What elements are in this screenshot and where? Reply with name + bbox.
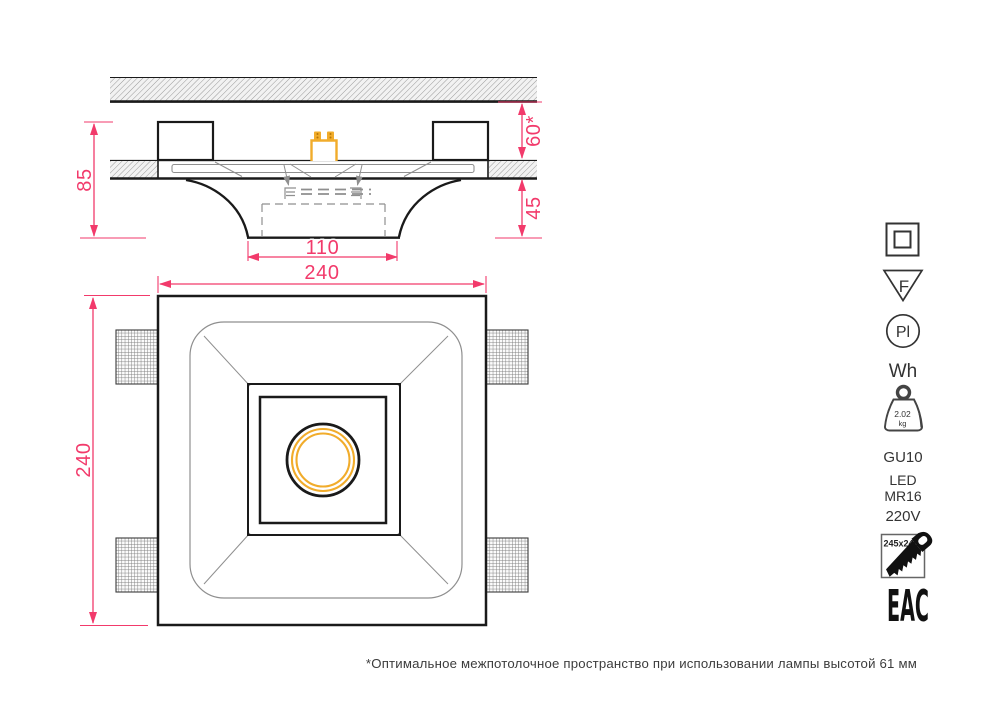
dimension-total-height: 85 [74, 122, 146, 238]
plasterboard-right-hatch [489, 161, 537, 178]
plan-view: 240 240 [73, 262, 528, 626]
section-view: 85 60* 45 110 [74, 77, 545, 261]
cone-corner-edges [204, 336, 448, 584]
technical-drawing-page: 85 60* 45 110 [0, 0, 1000, 706]
dimension-opening-width: 110 [248, 237, 397, 261]
weight-value-label: 2.02 [894, 409, 911, 419]
dim-plenum-label: 60* [523, 115, 545, 147]
mesh-pad-bottom-left [116, 538, 158, 592]
dim-opening-width-label: 110 [306, 237, 340, 259]
dimension-plenum: 60* [498, 102, 545, 158]
f-mark-icon: F [884, 271, 922, 301]
socket-pin-right [327, 132, 334, 141]
lamp-type-line2: MR16 [884, 488, 922, 504]
pl-mark-icon: Pl [887, 315, 919, 347]
cone-bottom-square [248, 384, 400, 535]
lamp-frame-square [260, 397, 386, 523]
socket-label: GU10 [883, 449, 922, 466]
socket-body [312, 141, 337, 162]
mesh-pad-bottom-right [486, 538, 528, 592]
fixture-flange [172, 165, 474, 173]
voltage-label: 220V [885, 508, 920, 525]
lamp-clip-left [285, 188, 296, 199]
plasterboard-left-hatch [110, 161, 158, 178]
weight-unit-label: kg [899, 419, 907, 428]
mounting-box-right [433, 122, 488, 160]
socket-pin-left [314, 132, 321, 141]
mesh-pad-top-left [116, 330, 158, 384]
section-hidden-lines [215, 162, 431, 236]
finish-color-label: Wh [889, 361, 918, 382]
dim-plan-height-label: 240 [73, 442, 95, 477]
dimension-recess-depth: 45 [495, 180, 545, 238]
footnote-text: *Оптимальное межпотолочное пространство … [366, 656, 917, 671]
lamp-socket-icon [312, 132, 337, 162]
drawing-canvas: 85 60* 45 110 [0, 0, 1000, 706]
dim-plan-width-label: 240 [304, 262, 339, 284]
lamp-type-line1: LED [889, 472, 916, 488]
dim-total-height-label: 85 [74, 168, 96, 191]
mounting-box-left [158, 122, 213, 160]
lamp-rings [287, 424, 359, 496]
pl-mark-label: Pl [896, 324, 910, 341]
dimension-plan-width: 240 [158, 262, 486, 293]
f-mark-label: F [899, 277, 909, 296]
cutout-saw-icon: 245x245 [880, 528, 936, 580]
eac-certification-mark: EAC [887, 581, 929, 632]
dim-recess-depth-label: 45 [523, 196, 545, 219]
spec-icon-column: F Pl Wh 2.02 kg GU10 LED MR16 220V 245x2… [880, 224, 936, 633]
lamp-outline-dashed [262, 204, 385, 236]
weight-icon: 2.02 kg [885, 387, 922, 431]
mesh-pad-top-right [486, 330, 528, 384]
ceiling-slab-hatch [110, 77, 537, 102]
insulation-class-icon [887, 224, 919, 256]
fixture-outer-square [158, 296, 486, 625]
